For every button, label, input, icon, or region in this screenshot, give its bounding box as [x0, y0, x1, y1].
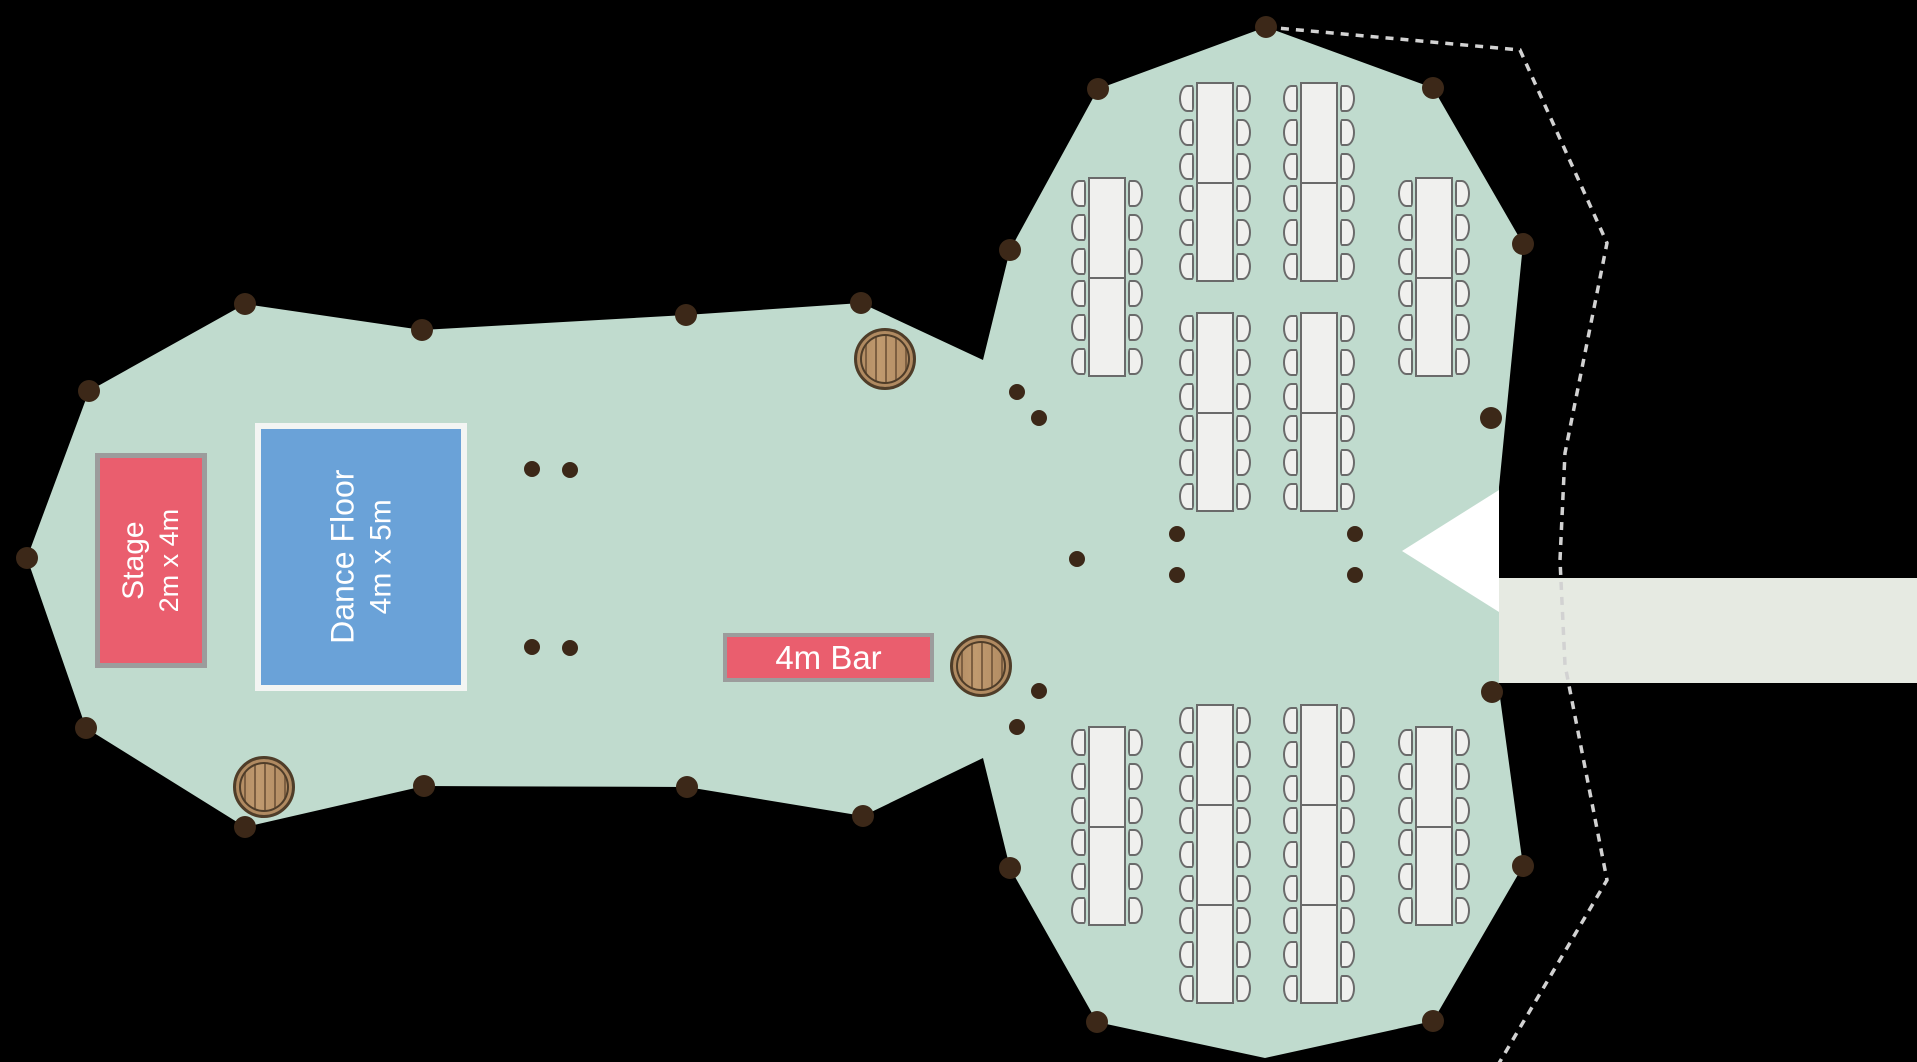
dance-floor[interactable]: Dance Floor 4m x 5m	[255, 423, 467, 691]
chair[interactable]	[1071, 314, 1086, 341]
chair[interactable]	[1283, 383, 1298, 410]
chair[interactable]	[1071, 180, 1086, 207]
chair[interactable]	[1179, 807, 1194, 834]
chair[interactable]	[1283, 219, 1298, 246]
dance-floor-label: Dance Floor	[322, 470, 362, 644]
tent-pole	[852, 805, 874, 827]
chair[interactable]	[1283, 349, 1298, 376]
banquet-table[interactable]	[1088, 177, 1126, 377]
bar-label: 4m Bar	[775, 639, 881, 677]
interior-pole	[562, 462, 578, 478]
chair[interactable]	[1071, 248, 1086, 275]
chair[interactable]	[1179, 383, 1194, 410]
chair[interactable]	[1179, 415, 1194, 442]
chair[interactable]	[1283, 941, 1298, 968]
tent-pole	[850, 292, 872, 314]
chair[interactable]	[1179, 841, 1194, 868]
banquet-table[interactable]	[1088, 726, 1126, 926]
floor-plan: Stage 2m x 4m Dance Floor 4m x 5m 4m Bar	[0, 0, 1917, 1062]
table-segment-divider	[1198, 804, 1232, 806]
chair[interactable]	[1398, 214, 1413, 241]
chair[interactable]	[1179, 775, 1194, 802]
chair[interactable]	[1398, 863, 1413, 890]
tent-pole	[1480, 407, 1502, 429]
chair[interactable]	[1179, 219, 1194, 246]
chair[interactable]	[1283, 907, 1298, 934]
table-segment-divider	[1198, 904, 1232, 906]
chair[interactable]	[1283, 415, 1298, 442]
interior-pole	[1009, 719, 1025, 735]
chair[interactable]	[1179, 875, 1194, 902]
chair[interactable]	[1283, 449, 1298, 476]
chair[interactable]	[1179, 153, 1194, 180]
tent-pole	[411, 319, 433, 341]
stage-dimensions: 2m x 4m	[153, 509, 187, 613]
chair[interactable]	[1179, 907, 1194, 934]
chair[interactable]	[1071, 348, 1086, 375]
chair[interactable]	[1283, 775, 1298, 802]
stage-label: Stage	[115, 509, 153, 613]
interior-pole	[1347, 526, 1363, 542]
interior-pole	[524, 639, 540, 655]
chair[interactable]	[1179, 449, 1194, 476]
chair[interactable]	[1179, 85, 1194, 112]
chair[interactable]	[1071, 280, 1086, 307]
chair[interactable]	[1283, 119, 1298, 146]
chair[interactable]	[1071, 829, 1086, 856]
chair[interactable]	[1283, 253, 1298, 280]
chair[interactable]	[1398, 180, 1413, 207]
tent-pole	[999, 239, 1021, 261]
tent-pole	[1255, 16, 1277, 38]
chair[interactable]	[1179, 349, 1194, 376]
chair[interactable]	[1398, 797, 1413, 824]
chair[interactable]	[1283, 85, 1298, 112]
tent-pole	[1512, 855, 1534, 877]
table-segment-divider	[1198, 182, 1232, 184]
dance-floor-dimensions: 4m x 5m	[362, 470, 400, 644]
chair[interactable]	[1283, 741, 1298, 768]
chair[interactable]	[1398, 829, 1413, 856]
tent-pole	[1086, 1011, 1108, 1033]
tent-pole	[1422, 1010, 1444, 1032]
chair[interactable]	[1179, 941, 1194, 968]
interior-pole	[1031, 683, 1047, 699]
chair[interactable]	[1398, 280, 1413, 307]
chair[interactable]	[1283, 975, 1298, 1002]
chair[interactable]	[1398, 729, 1413, 756]
banquet-table[interactable]	[1415, 726, 1453, 926]
banquet-table[interactable]	[1300, 82, 1338, 282]
table-segment-divider	[1302, 904, 1336, 906]
banquet-table[interactable]	[1300, 312, 1338, 512]
wine-barrel[interactable]	[854, 328, 916, 390]
banquet-table[interactable]	[1300, 704, 1338, 1004]
chair[interactable]	[1179, 119, 1194, 146]
interior-pole	[1347, 567, 1363, 583]
tent-pole	[234, 293, 256, 315]
chair[interactable]	[1071, 863, 1086, 890]
chair[interactable]	[1398, 897, 1413, 924]
stage[interactable]: Stage 2m x 4m	[95, 453, 207, 668]
tent-pole	[1512, 233, 1534, 255]
table-segment-divider	[1417, 277, 1451, 279]
chair[interactable]	[1398, 314, 1413, 341]
chair[interactable]	[1398, 248, 1413, 275]
banquet-table[interactable]	[1196, 704, 1234, 1004]
chair[interactable]	[1179, 185, 1194, 212]
table-segment-divider	[1302, 412, 1336, 414]
interior-pole	[1031, 410, 1047, 426]
chair[interactable]	[1283, 841, 1298, 868]
chair[interactable]	[1283, 807, 1298, 834]
interior-pole	[1169, 567, 1185, 583]
tent-pole	[78, 380, 100, 402]
interior-pole	[562, 640, 578, 656]
banquet-table[interactable]	[1415, 177, 1453, 377]
table-segment-divider	[1302, 804, 1336, 806]
tent-pole	[676, 776, 698, 798]
interior-pole	[1009, 384, 1025, 400]
chair[interactable]	[1179, 483, 1194, 510]
banquet-table[interactable]	[1196, 82, 1234, 282]
chair[interactable]	[1179, 707, 1194, 734]
table-segment-divider	[1090, 277, 1124, 279]
tent-pole	[234, 816, 256, 838]
interior-pole	[1069, 551, 1085, 567]
tent-pole	[16, 547, 38, 569]
dance-floor-label-group: Dance Floor 4m x 5m	[322, 470, 400, 644]
chair[interactable]	[1071, 897, 1086, 924]
chair[interactable]	[1283, 707, 1298, 734]
tent-floor	[27, 27, 1523, 1058]
table-segment-divider	[1090, 826, 1124, 828]
tent-pole	[75, 717, 97, 739]
chair[interactable]	[1071, 797, 1086, 824]
bar[interactable]: 4m Bar	[723, 633, 934, 682]
table-segment-divider	[1302, 182, 1336, 184]
chair[interactable]	[1179, 253, 1194, 280]
chair[interactable]	[1283, 153, 1298, 180]
chair[interactable]	[1398, 348, 1413, 375]
wine-barrel[interactable]	[950, 635, 1012, 697]
wine-barrel[interactable]	[233, 756, 295, 818]
stage-label-group: Stage 2m x 4m	[115, 509, 186, 613]
table-segment-divider	[1417, 826, 1451, 828]
tent-pole	[413, 775, 435, 797]
chair[interactable]	[1283, 483, 1298, 510]
tent-pole	[675, 304, 697, 326]
chair[interactable]	[1071, 729, 1086, 756]
chair[interactable]	[1071, 214, 1086, 241]
tent-pole	[1087, 78, 1109, 100]
chair[interactable]	[1071, 763, 1086, 790]
chair[interactable]	[1179, 741, 1194, 768]
chair[interactable]	[1283, 875, 1298, 902]
tent-pole	[1481, 681, 1503, 703]
chair[interactable]	[1179, 315, 1194, 342]
table-segment-divider	[1198, 412, 1232, 414]
interior-pole	[524, 461, 540, 477]
chair[interactable]	[1283, 185, 1298, 212]
tent-pole	[999, 857, 1021, 879]
chair[interactable]	[1398, 763, 1413, 790]
interior-pole	[1169, 526, 1185, 542]
chair[interactable]	[1283, 315, 1298, 342]
chair[interactable]	[1179, 975, 1194, 1002]
tent-pole	[1422, 77, 1444, 99]
banquet-table[interactable]	[1196, 312, 1234, 512]
